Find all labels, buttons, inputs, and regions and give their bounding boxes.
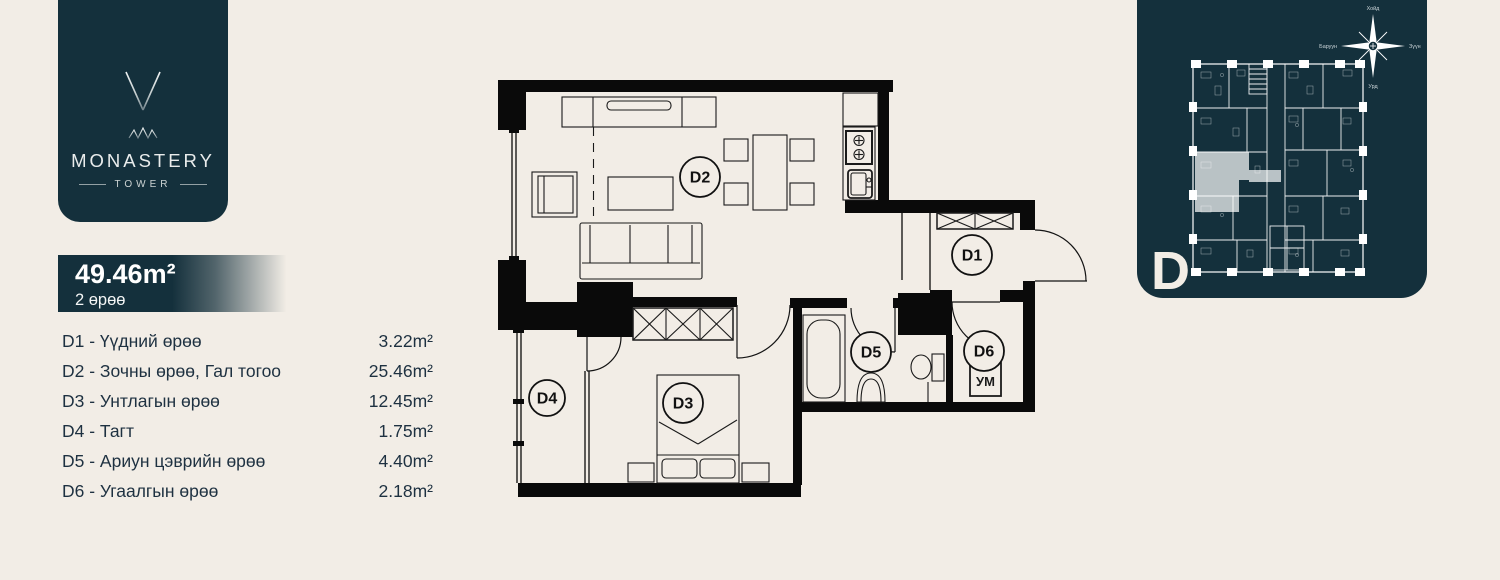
compass-east-label: Зүүн (1409, 44, 1421, 50)
room-area: 4.40m² (379, 451, 433, 472)
toilet (911, 354, 944, 402)
room-label: D1 - Үүдний өрөө (62, 331, 202, 352)
svg-text:D5: D5 (861, 345, 882, 362)
compass-south-label: Урд (1368, 84, 1378, 90)
pedestal-sink (857, 373, 885, 402)
room-label: D5 - Ариун цэврийн өрөө (62, 451, 265, 472)
room-label-circle-d2: D2 (680, 157, 720, 197)
floor-key-panel: Хойд Урд Баруун Зүүн D (1137, 0, 1427, 298)
brand-badge: MONASTERY TOWER (58, 0, 228, 222)
svg-text:D6: D6 (974, 344, 995, 361)
brand-name: MONASTERY (58, 150, 228, 172)
compass-north-label: Хойд (1367, 5, 1381, 12)
room-label-circle-d4: D4 (529, 380, 565, 416)
balcony-door (587, 337, 621, 371)
tower-logo-icon (58, 0, 228, 148)
sofa (580, 223, 702, 279)
rule-left (79, 184, 106, 185)
brand-subtitle-text: TOWER (114, 179, 171, 190)
room-area: 25.46m² (369, 361, 433, 382)
wardrobe (633, 308, 733, 340)
rule-right (180, 184, 207, 185)
room-row: D6 - Угаалгын өрөө 2.18m² (62, 476, 433, 506)
dining-chair (724, 183, 748, 205)
room-area: 12.45m² (369, 391, 433, 412)
walls (498, 80, 1035, 497)
svg-text:D1: D1 (962, 248, 983, 265)
svg-text:D4: D4 (537, 391, 558, 408)
washer-label: УМ (976, 374, 995, 389)
room-label: D2 - Зочны өрөө, Гал тогоо (62, 361, 281, 382)
tv-cabinet (562, 97, 716, 127)
highlighted-unit (1195, 152, 1281, 212)
compass-west-label: Баруун (1319, 44, 1337, 50)
total-area: 49.46m² (75, 260, 296, 288)
room-label-circle-d3: D3 (663, 383, 703, 423)
compass-icon: Хойд Урд Баруун Зүүн (1319, 5, 1420, 90)
dining-chair (790, 139, 814, 161)
brand-subtitle: TOWER (58, 179, 228, 190)
room-row: D2 - Зочны өрөө, Гал тогоо 25.46m² (62, 356, 433, 386)
stove (846, 131, 872, 164)
area-summary: 49.46m² 2 өрөө (58, 255, 296, 312)
dining-chair (790, 183, 814, 205)
svg-text:D2: D2 (690, 170, 711, 187)
room-label-circle-d5: D5 (851, 332, 891, 372)
bedroom-door (737, 305, 790, 358)
room-row: D1 - Үүдний өрөө 3.22m² (62, 326, 433, 356)
room-label-circle-d6: D6 (964, 331, 1004, 371)
entry-closet (937, 213, 1013, 229)
dining-chair (724, 139, 748, 161)
room-list: D1 - Үүдний өрөө 3.22m² D2 - Зочны өрөө,… (62, 326, 433, 506)
armchair (532, 172, 577, 217)
room-row: D5 - Ариун цэврийн өрөө 4.40m² (62, 446, 433, 476)
bathtub (803, 315, 845, 402)
room-row: D3 - Унтлагын өрөө 12.45m² (62, 386, 433, 416)
room-row: D4 - Тагт 1.75m² (62, 416, 433, 446)
room-area: 3.22m² (379, 331, 433, 352)
tv (607, 101, 671, 110)
floor-plan: УМ D2 D1 D4 D3 D5 D6 (497, 70, 1097, 505)
room-label: D3 - Унтлагын өрөө (62, 391, 220, 412)
entrance-door (1035, 230, 1087, 281)
room-label-circle-d1: D1 (952, 235, 992, 275)
room-area: 2.18m² (379, 481, 433, 502)
coffee-table (608, 177, 673, 210)
room-label: D4 - Тагт (62, 421, 134, 442)
kitchen-sink (848, 170, 872, 198)
nightstand (628, 463, 654, 482)
kitchen-cabinet (843, 93, 878, 126)
svg-text:D3: D3 (673, 396, 694, 413)
room-label: D6 - Угаалгын өрөө (62, 481, 218, 502)
dining-table (753, 135, 787, 210)
room-count: 2 өрөө (75, 291, 296, 310)
nightstand (742, 463, 769, 482)
room-area: 1.75m² (379, 421, 433, 442)
block-letter: D (1151, 244, 1190, 298)
